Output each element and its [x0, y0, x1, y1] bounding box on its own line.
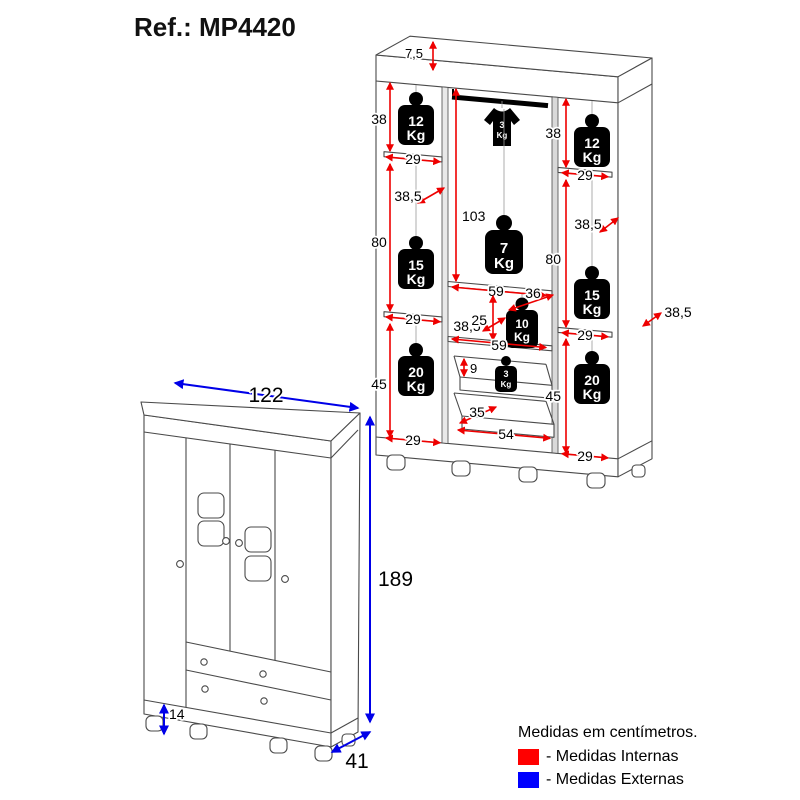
- svg-text:35: 35: [469, 404, 485, 420]
- svg-text:25: 25: [471, 312, 487, 328]
- legend-external-label: - Medidas Externas: [546, 771, 684, 789]
- svg-text:Kg: Kg: [407, 271, 426, 287]
- svg-text:38,5: 38,5: [574, 216, 601, 232]
- svg-text:Kg: Kg: [583, 301, 602, 317]
- svg-text:189: 189: [378, 568, 413, 591]
- svg-text:54: 54: [498, 426, 514, 442]
- svg-text:Kg: Kg: [497, 131, 508, 140]
- svg-text:Kg: Kg: [514, 330, 530, 344]
- svg-text:29: 29: [405, 151, 421, 167]
- svg-text:29: 29: [577, 448, 593, 464]
- svg-text:38,5: 38,5: [394, 188, 421, 204]
- svg-text:10: 10: [515, 317, 529, 331]
- svg-text:9: 9: [470, 361, 477, 376]
- svg-text:3: 3: [503, 369, 508, 379]
- svg-text:Kg: Kg: [583, 149, 602, 165]
- svg-text:41: 41: [345, 750, 368, 773]
- svg-text:Kg: Kg: [407, 127, 426, 143]
- svg-text:38: 38: [371, 111, 387, 127]
- svg-text:80: 80: [371, 234, 387, 250]
- legend-internal-label: - Medidas Internas: [546, 748, 679, 766]
- svg-text:36: 36: [525, 285, 541, 301]
- legend-external-row: - Medidas Externas: [518, 771, 698, 789]
- svg-text:Kg: Kg: [494, 255, 514, 272]
- svg-text:59: 59: [488, 283, 504, 299]
- svg-text:59: 59: [491, 337, 507, 353]
- svg-text:29: 29: [577, 167, 593, 183]
- legend: Medidas em centímetros. - Medidas Intern…: [518, 724, 698, 794]
- svg-text:29: 29: [405, 311, 421, 327]
- legend-internal-row: - Medidas Internas: [518, 748, 698, 766]
- svg-text:103: 103: [462, 208, 486, 224]
- assembly-dimensions-sheet: Ref.: MP4420: [0, 0, 800, 800]
- svg-text:122: 122: [248, 384, 283, 407]
- legend-title: Medidas em centímetros.: [518, 724, 698, 742]
- dim-external-height: 189: [370, 417, 413, 722]
- svg-text:80: 80: [545, 251, 561, 267]
- svg-text:Kg: Kg: [583, 386, 602, 402]
- svg-text:38,5: 38,5: [664, 304, 691, 320]
- svg-text:14: 14: [169, 706, 185, 722]
- page-title: Ref.: MP4420: [134, 12, 296, 43]
- svg-text:45: 45: [545, 388, 561, 404]
- svg-text:Kg: Kg: [501, 380, 512, 389]
- svg-text:7,5: 7,5: [405, 46, 423, 61]
- svg-text:38: 38: [545, 125, 561, 141]
- dim-external-width: 122: [175, 383, 358, 408]
- external-measures-swatch: [518, 772, 539, 788]
- external-dimensions-diagram: 122 189 41 14: [128, 372, 438, 792]
- svg-text:29: 29: [577, 327, 593, 343]
- internal-measures-swatch: [518, 749, 539, 765]
